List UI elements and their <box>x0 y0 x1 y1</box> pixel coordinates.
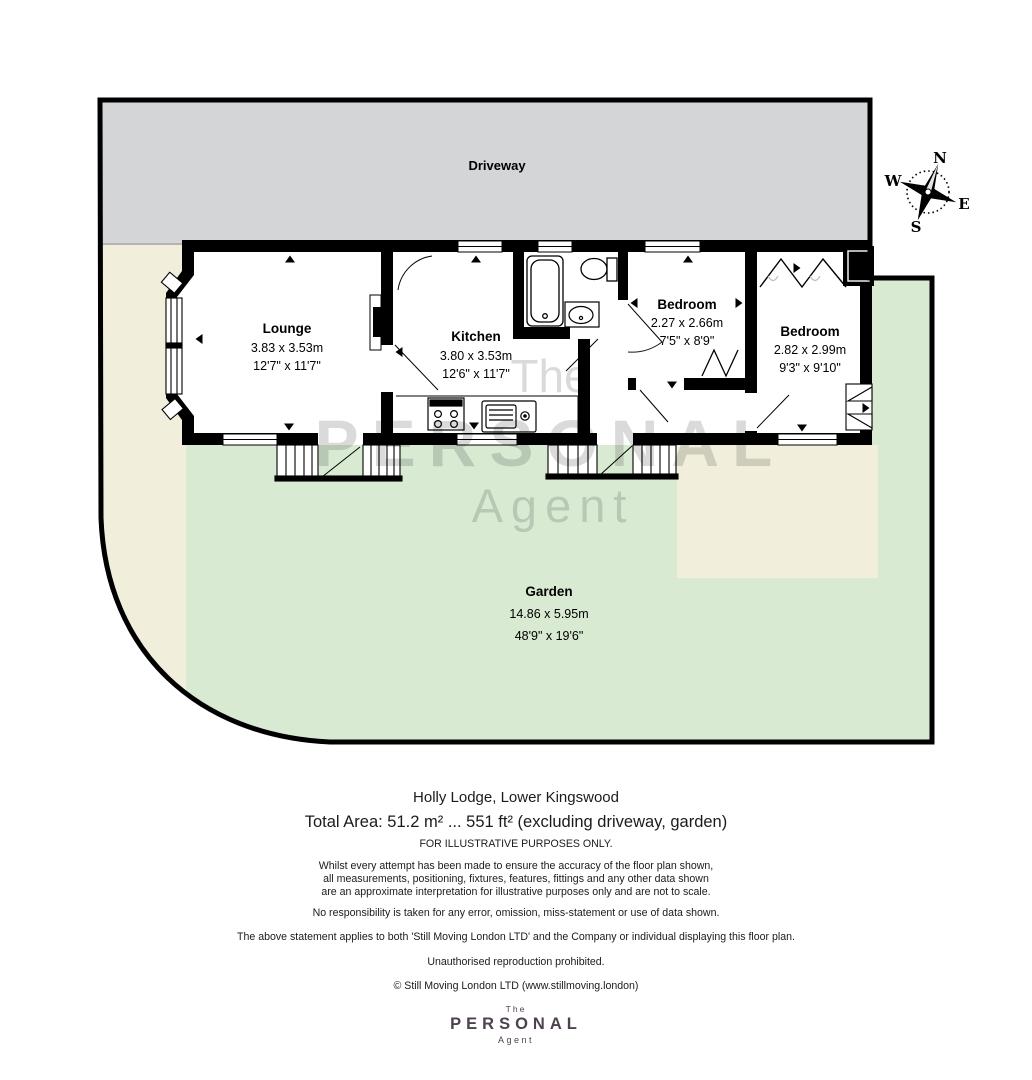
copyright-note: © Still Moving London LTD (www.stillmovi… <box>0 980 1032 992</box>
bedroom1-dimensions-metric: 2.27 x 2.66m <box>651 316 723 330</box>
logo-the: The <box>0 1004 1032 1014</box>
bedroom2-label: Bedroom <box>780 324 839 339</box>
disclaimer-line-1: Whilst every attempt has been made to en… <box>0 860 1032 873</box>
kitchen-dimensions-imperial: 12'6" x 11'7" <box>442 367 510 381</box>
fireplace-icon <box>370 295 381 350</box>
watermark-the: The <box>510 350 589 402</box>
watermark-personal: PERSONAL <box>315 406 786 480</box>
toilet-icon <box>581 258 617 281</box>
floor-plan-svg: Driveway <box>0 0 1032 770</box>
responsibility-note: No responsibility is taken for any error… <box>0 907 1032 919</box>
basin-icon <box>565 302 599 327</box>
driveway-label: Driveway <box>468 158 526 173</box>
kitchen-label: Kitchen <box>451 329 501 344</box>
compass-north-label: N <box>933 149 947 167</box>
kitchen-dimensions-metric: 3.80 x 3.53m <box>440 349 512 363</box>
garden-dimensions-imperial: 48'9" x 19'6" <box>515 629 584 643</box>
disclaimer-line-2: all measurements, positioning, fixtures,… <box>0 873 1032 886</box>
lounge-dimensions-metric: 3.83 x 3.53m <box>251 341 323 355</box>
compass-rose: N E S W <box>884 149 970 236</box>
total-area-text: Total Area: 51.2 m² ... 551 ft² (excludi… <box>0 813 1032 832</box>
floor-plan-page: Driveway <box>0 0 1032 1080</box>
property-address: Holly Lodge, Lower Kingswood <box>0 789 1032 806</box>
bedroom1-dimensions-imperial: 7'5" x 8'9" <box>660 334 715 348</box>
bedroom1-label: Bedroom <box>657 297 716 312</box>
garden-label: Garden <box>525 584 572 599</box>
bedroom2-dimensions-imperial: 9'3" x 9'10" <box>779 361 841 375</box>
garden-dimensions-metric: 14.86 x 5.95m <box>509 607 588 621</box>
disclaimer-paragraph: Whilst every attempt has been made to en… <box>0 860 1032 900</box>
reproduction-note: Unauthorised reproduction prohibited. <box>0 956 1032 968</box>
bedroom2-dimensions-metric: 2.82 x 2.99m <box>774 343 846 357</box>
logo-agent: Agent <box>0 1035 1032 1045</box>
illustrative-note: FOR ILLUSTRATIVE PURPOSES ONLY. <box>0 838 1032 850</box>
room-bedroom-1 <box>628 252 745 378</box>
lounge-label: Lounge <box>263 321 312 336</box>
watermark-agent: Agent <box>472 479 635 532</box>
logo-personal: PERSONAL <box>0 1015 1032 1034</box>
lounge-dimensions-imperial: 12'7" x 11'7" <box>253 359 321 373</box>
personal-agent-logo: The PERSONAL Agent <box>0 1004 1032 1045</box>
compass-east-label: E <box>958 195 969 213</box>
statement-note: The above statement applies to both 'Sti… <box>0 931 1032 943</box>
disclaimer-line-3: are an approximate interpretation for il… <box>0 886 1032 899</box>
compass-south-label: S <box>911 218 922 236</box>
bath-icon <box>527 256 563 326</box>
compass-west-label: W <box>884 172 903 190</box>
